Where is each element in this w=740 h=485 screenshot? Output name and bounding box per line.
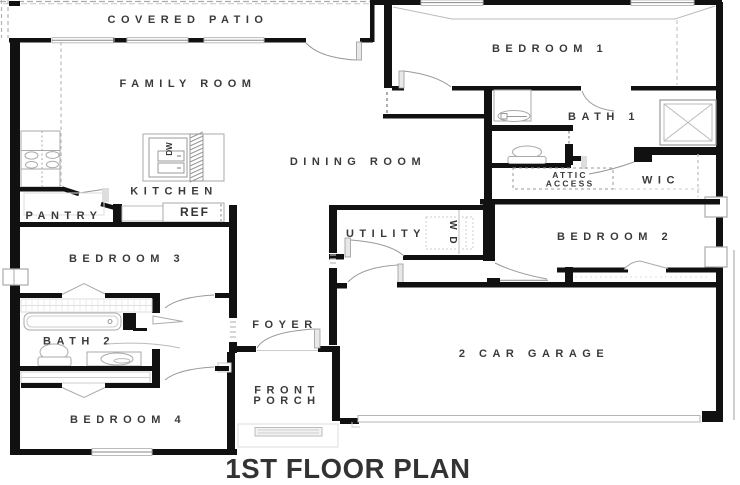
svg-text:D: D <box>447 236 458 243</box>
svg-text:KITCHEN: KITCHEN <box>130 186 217 198</box>
svg-text:PANTRY: PANTRY <box>26 210 103 222</box>
svg-text:BATH 1: BATH 1 <box>568 111 640 123</box>
svg-text:BEDROOM 1: BEDROOM 1 <box>492 43 608 55</box>
svg-text:2 CAR GARAGE: 2 CAR GARAGE <box>459 348 609 360</box>
svg-text:REF: REF <box>180 205 210 219</box>
svg-text:BEDROOM 2: BEDROOM 2 <box>557 231 673 243</box>
svg-text:COVERED PATIO: COVERED PATIO <box>108 14 269 26</box>
svg-text:PORCH: PORCH <box>253 395 320 407</box>
svg-text:BEDROOM 3: BEDROOM 3 <box>69 253 185 265</box>
svg-text:ACCESS: ACCESS <box>546 179 595 189</box>
svg-text:1ST FLOOR PLAN: 1ST FLOOR PLAN <box>225 453 470 480</box>
svg-text:DW: DW <box>165 142 174 156</box>
svg-text:W: W <box>447 220 458 230</box>
svg-text:FAMILY ROOM: FAMILY ROOM <box>120 78 257 90</box>
svg-text:WIC: WIC <box>642 175 680 187</box>
svg-text:BEDROOM 4: BEDROOM 4 <box>70 414 186 426</box>
svg-text:UTILITY: UTILITY <box>346 228 426 240</box>
svg-text:DINING ROOM: DINING ROOM <box>290 156 426 168</box>
